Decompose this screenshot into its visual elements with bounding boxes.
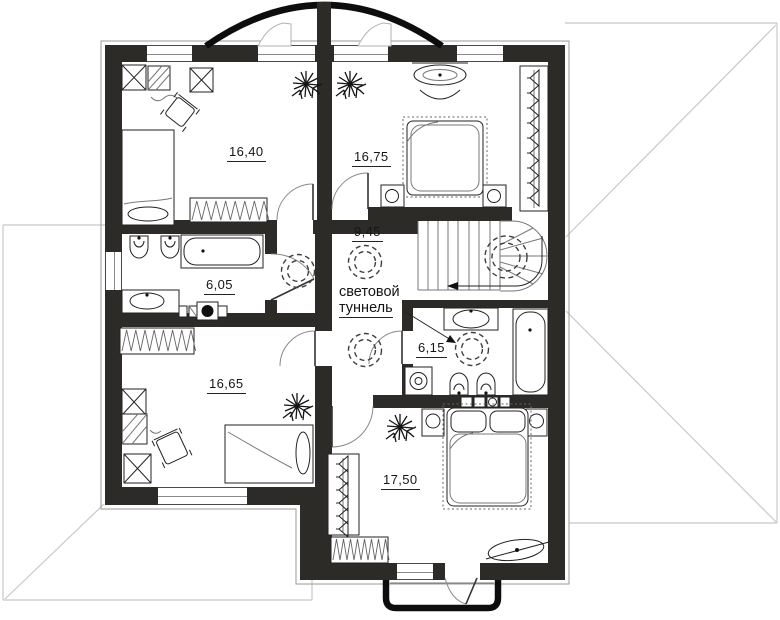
bed-carpet	[403, 117, 487, 197]
stair-walk-line	[453, 236, 542, 286]
stair-direction-arrow	[447, 282, 458, 290]
wall-hall-north-1	[122, 220, 277, 234]
bathtub-icon	[181, 235, 263, 268]
wall-bedroom-tr-bottom	[368, 207, 512, 221]
room-area-label: 17,50	[381, 472, 420, 487]
wall-bath-left-south	[122, 313, 332, 327]
room-area-label: 16,40	[227, 144, 266, 159]
room-area-label: 9,45	[352, 224, 383, 239]
bed-carpet	[443, 404, 531, 509]
light-tunnel-label-line2: туннель	[339, 300, 400, 316]
room-area-label: 16,65	[207, 376, 246, 391]
room-area-label: 16,75	[352, 149, 391, 164]
wall-top-pier	[315, 45, 334, 62]
wardrobe-icon	[122, 65, 146, 90]
bed-icon	[225, 425, 313, 483]
wardrobe-icon	[190, 68, 213, 92]
wardrobe-icon	[124, 454, 151, 483]
dormer-roof-arc	[206, 2, 442, 47]
wall-bath-right-north	[402, 300, 565, 308]
bathtub-icon	[513, 309, 548, 395]
vanity-sink-icon	[122, 290, 179, 313]
bedroom-bottom-left-furniture	[120, 328, 313, 483]
chair-icon	[160, 92, 199, 131]
wall-bath-right-west-2	[402, 364, 413, 395]
chair-icon	[152, 428, 192, 468]
radiator-icon	[190, 198, 269, 222]
wall-right	[548, 45, 565, 580]
decor-squiggle	[151, 95, 178, 101]
washbasin-icon	[450, 373, 468, 395]
window-top-left	[147, 45, 192, 62]
washbasin-icon	[161, 236, 179, 258]
wall-divider-mid-1	[315, 221, 332, 331]
washbasin-icon	[477, 373, 495, 395]
wall-bottom-right-pier	[433, 563, 445, 580]
roof-left	[3, 225, 312, 600]
nightstand-icon	[381, 185, 404, 207]
floor-plan: 16,40 16,75 9,45 6,05 6,15 16,65 17,50 с…	[0, 0, 780, 620]
light-tunnel-icon	[485, 236, 527, 278]
plant-icon	[336, 71, 366, 99]
toilet-icon	[444, 308, 498, 330]
wall-bath-left-east-1	[265, 220, 277, 254]
light-tunnel-icon	[282, 255, 315, 288]
door-bedroom-bottom-right	[332, 406, 373, 447]
light-tunnel-label-line1: световой	[339, 284, 400, 300]
door-bathroom-right	[369, 331, 402, 364]
wall-top-2	[192, 45, 258, 62]
mirror-dresser-icon	[486, 536, 549, 564]
light-tunnel-icon	[349, 246, 382, 279]
window-dormer-1	[258, 45, 315, 62]
bathroom-left-fixtures	[122, 235, 263, 320]
light-tunnel-label: световой туннель	[339, 284, 400, 316]
wall-bottom-right-1	[300, 563, 397, 580]
wall-left-2	[105, 290, 122, 505]
wall-bedroom-br-north	[373, 395, 565, 408]
door-balcony	[445, 578, 477, 604]
light-tunnel-icon	[456, 333, 489, 366]
door-bedroom-top-right	[332, 173, 368, 209]
nightstand-icon	[422, 409, 444, 436]
bedroom-top-left-furniture	[122, 65, 322, 225]
nightstand-icon	[526, 409, 547, 436]
room-area-label: 6,05	[204, 277, 235, 292]
desk-icon	[122, 414, 161, 444]
door-bedroom-top-left	[277, 184, 313, 220]
closet-hangers-icon	[520, 66, 548, 211]
roof-right	[565, 23, 777, 523]
staircase	[418, 221, 547, 291]
door-bedroom-bottom-left	[280, 331, 315, 366]
door-bathroom-left	[271, 254, 314, 300]
window-bathroom-left	[105, 252, 122, 290]
bed-icon	[122, 130, 174, 225]
double-bed-icon	[447, 408, 528, 506]
radiator-icon	[120, 328, 196, 354]
wardrobe-icon	[122, 389, 146, 415]
double-bed-icon	[407, 121, 483, 195]
bedroom-bottom-right-furniture	[328, 404, 549, 564]
wall-bottom-left-1	[105, 487, 158, 505]
window-top-right	[457, 45, 503, 62]
wall-left-1	[105, 45, 122, 252]
shelf-icon	[148, 66, 170, 90]
wall-divider-mid-2	[315, 366, 332, 487]
wall-stair-stub	[408, 207, 418, 234]
radiator-icon	[331, 537, 389, 563]
light-tunnel-icon	[349, 334, 382, 367]
washbasin-icon	[130, 236, 148, 258]
wall-divider-top-rooms	[317, 62, 332, 222]
dressing-table-icon	[412, 63, 468, 99]
nightstand-icon	[483, 185, 506, 207]
window-bottom-left	[158, 487, 247, 505]
window-dormer-2	[334, 45, 388, 62]
wall-top-3	[388, 45, 457, 62]
balcony	[386, 580, 498, 608]
chimney	[317, 2, 331, 47]
room-area-label: 6,15	[416, 340, 447, 355]
plant-icon	[283, 393, 313, 421]
window-bottom-right	[397, 563, 433, 580]
plant-icon	[386, 414, 416, 442]
bedroom-top-right-furniture	[336, 63, 548, 211]
wall-bath-right-west-1	[402, 300, 413, 331]
